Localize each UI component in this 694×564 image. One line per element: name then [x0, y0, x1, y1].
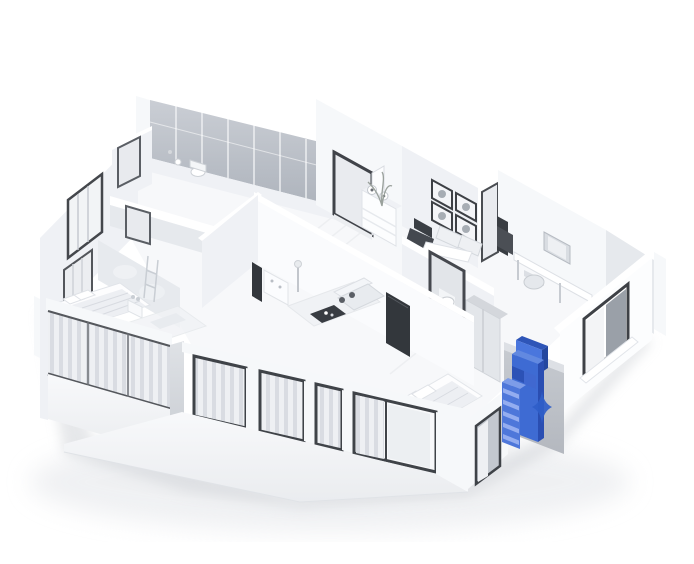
- window: [316, 384, 342, 450]
- sink: [175, 159, 181, 165]
- cushion: [339, 297, 345, 303]
- floorplan-render: [0, 0, 694, 564]
- window: [260, 371, 304, 441]
- cushion: [349, 292, 355, 298]
- desk-chair: [524, 275, 544, 289]
- door-frame: [126, 206, 150, 244]
- floorplan-canvas: [0, 0, 694, 564]
- study-door-frame: [482, 183, 498, 261]
- ceiling-lamp: [168, 150, 172, 154]
- tv-screen: [252, 262, 262, 302]
- corner-post: [654, 252, 666, 336]
